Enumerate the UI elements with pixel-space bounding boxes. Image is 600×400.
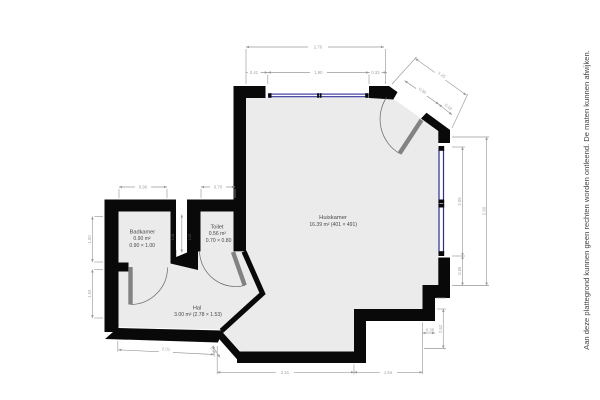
svg-text:0.38: 0.38 [426,328,435,333]
svg-text:Toilet: Toilet [210,225,224,231]
svg-text:0.55: 0.55 [457,266,462,275]
svg-text:Hal: Hal [193,305,201,311]
svg-text:0.32: 0.32 [371,70,380,75]
svg-text:2.90: 2.90 [481,206,486,215]
svg-text:2.70: 2.70 [314,45,323,50]
svg-text:2.09: 2.09 [457,197,462,206]
svg-text:0.56 m²: 0.56 m² [209,231,227,237]
svg-text:1.53: 1.53 [87,289,92,298]
svg-text:0.41: 0.41 [250,70,259,75]
svg-text:1.00: 1.00 [188,234,192,241]
svg-text:1.00: 1.00 [87,235,92,244]
svg-text:2.21: 2.21 [281,370,290,375]
svg-text:0.62: 0.62 [438,324,443,333]
svg-text:16.39 m² (401 × 491): 16.39 m² (401 × 491) [309,222,357,228]
svg-text:0.70: 0.70 [214,185,223,190]
svg-text:1.54: 1.54 [384,370,393,375]
svg-text:1.90: 1.90 [314,70,323,75]
svg-text:0.90: 0.90 [139,185,148,190]
svg-text:Aan deze plattegrond kunnen ge: Aan deze plattegrond kunnen geen rechten… [582,50,591,350]
svg-text:Badkamer: Badkamer [130,230,156,236]
svg-text:0.90 × 1.00: 0.90 × 1.00 [129,243,155,249]
svg-text:Huiskamer: Huiskamer [319,215,347,221]
svg-text:2.01: 2.01 [162,346,171,351]
svg-text:0.90 m²: 0.90 m² [133,236,151,242]
svg-text:1.06: 1.06 [171,234,175,241]
svg-text:3.00 m² (2.78 × 1.53): 3.00 m² (2.78 × 1.53) [174,312,222,318]
svg-text:0.70 × 0.80: 0.70 × 0.80 [206,238,232,244]
